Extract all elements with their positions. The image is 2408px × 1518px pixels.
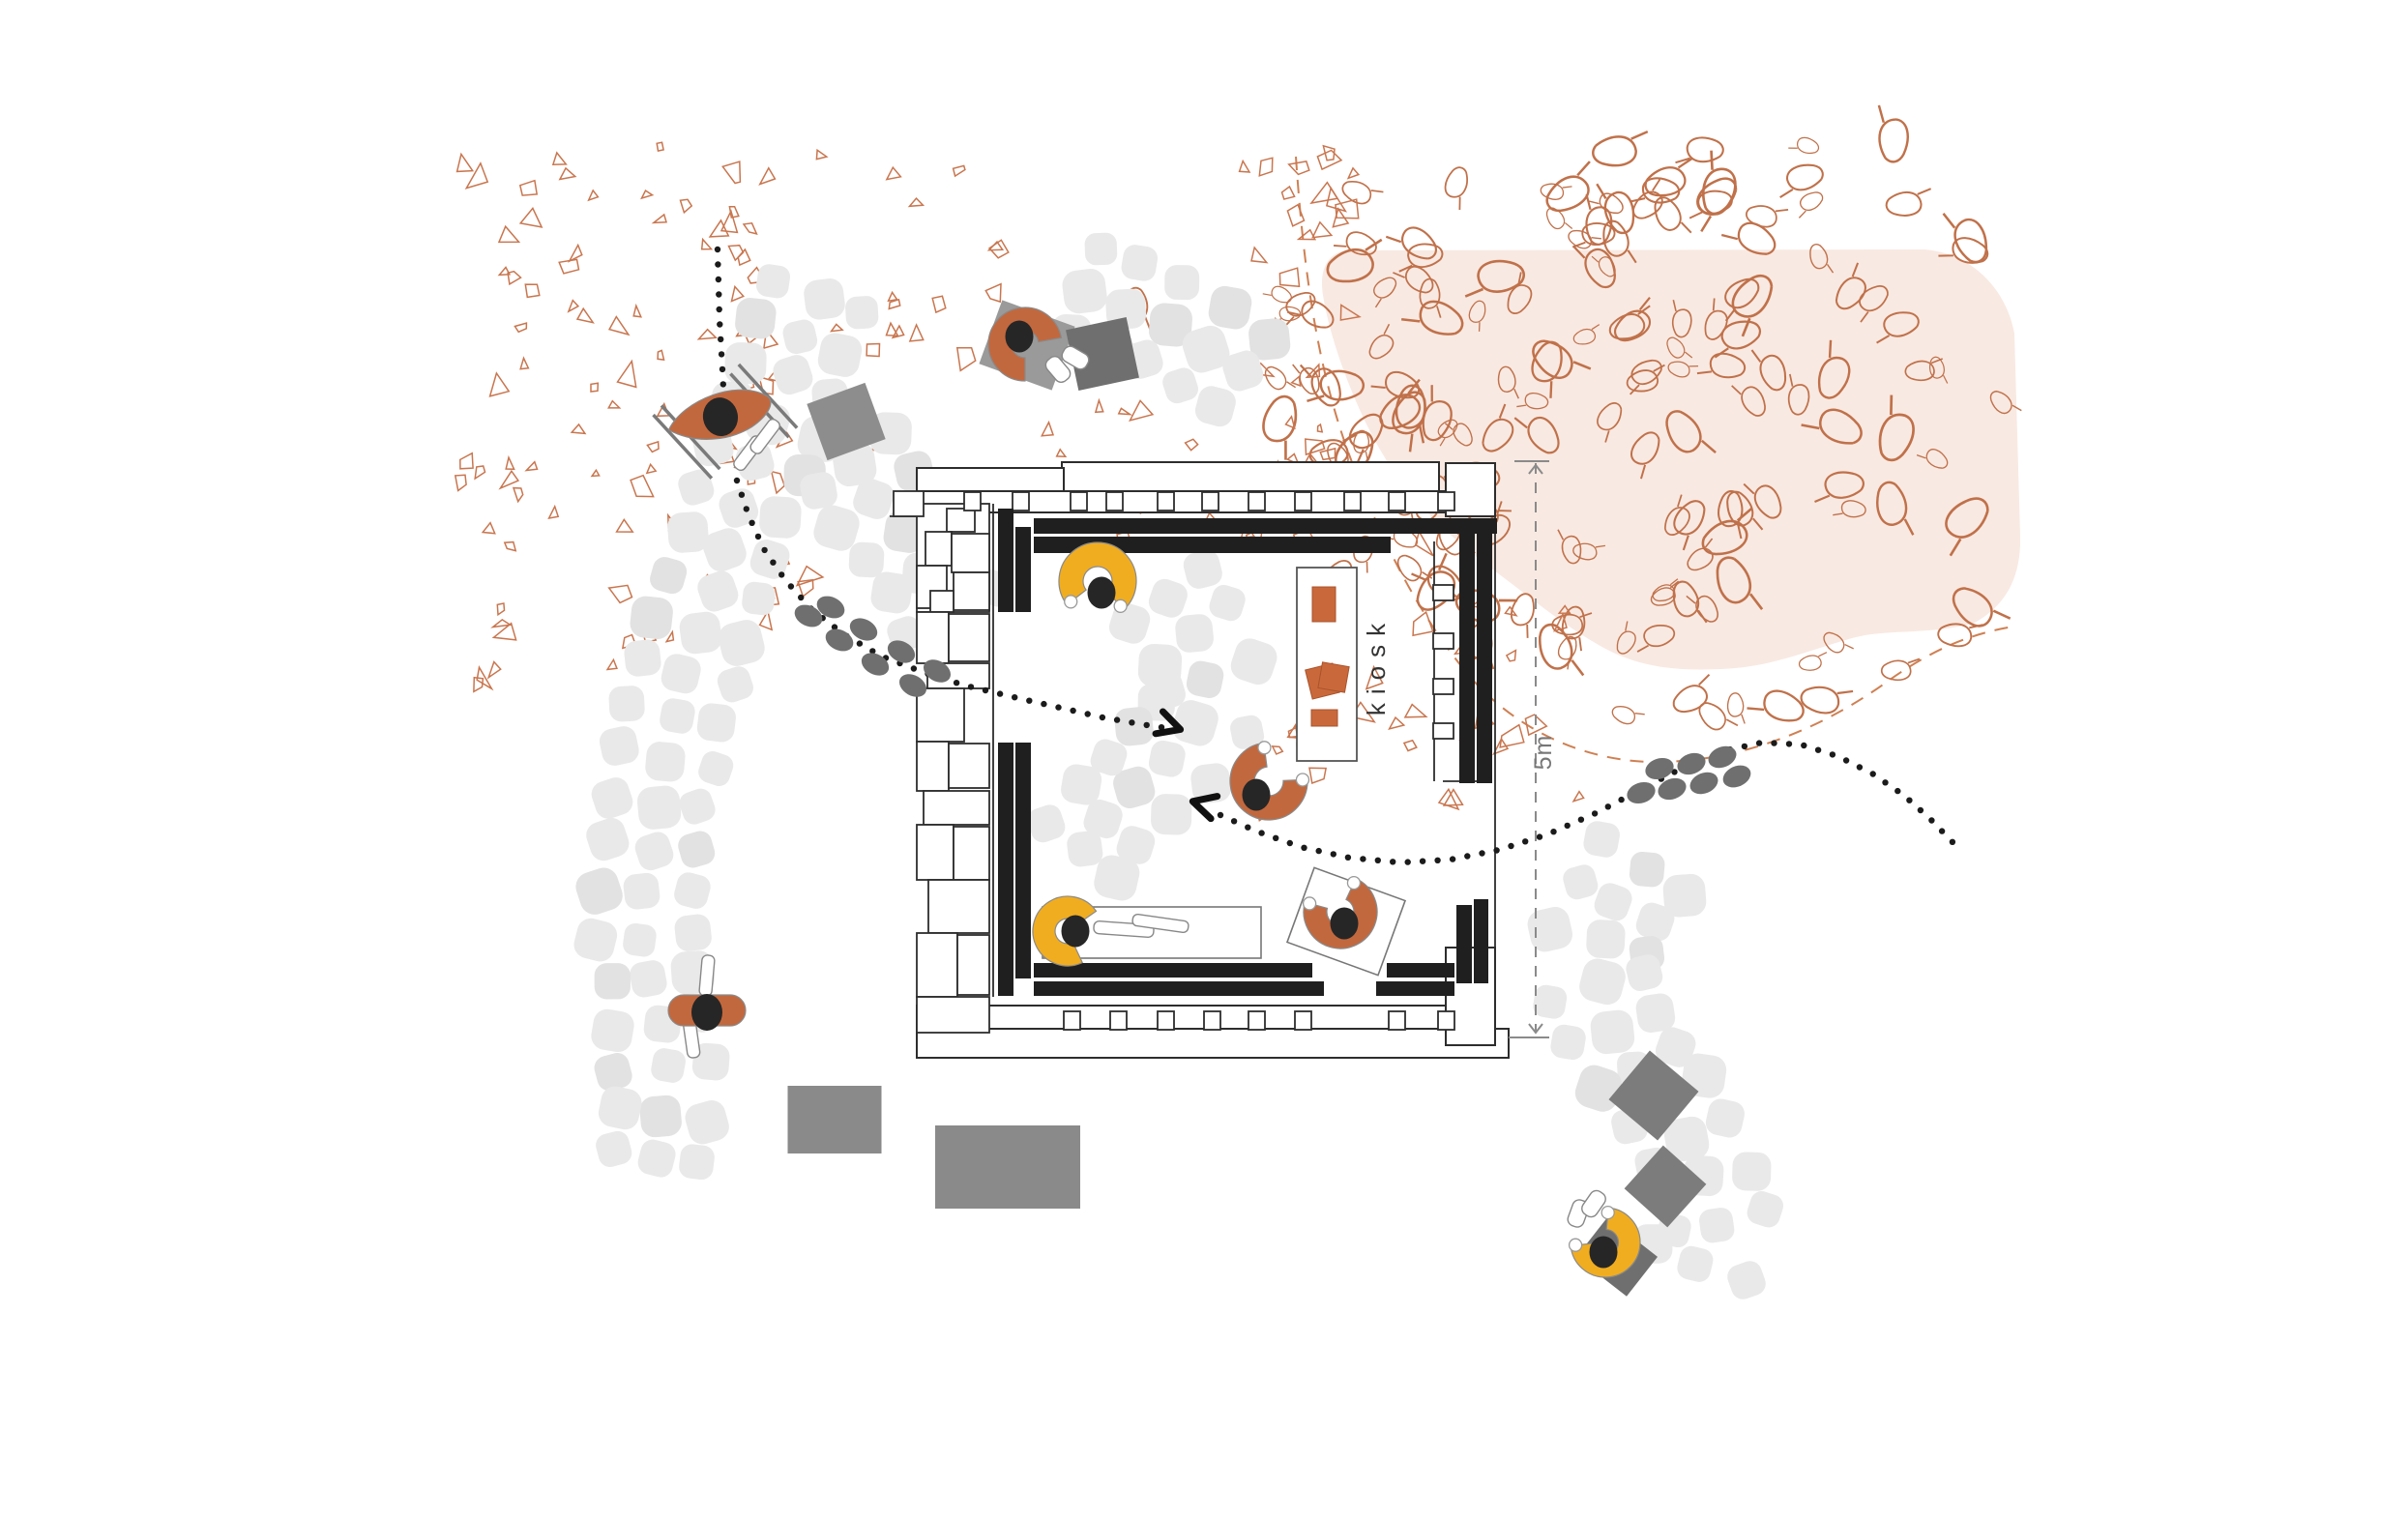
confetti-icon	[738, 249, 750, 265]
cobblestone	[1147, 739, 1188, 779]
leaf-icon	[1590, 113, 1648, 175]
cobblestone	[638, 1095, 683, 1139]
cobblestone	[1207, 582, 1248, 624]
cobblestone	[1145, 575, 1190, 621]
confetti-icon	[474, 678, 484, 692]
confetti-icon	[1318, 424, 1323, 432]
wall-black	[998, 743, 1013, 996]
confetti-icon	[455, 475, 466, 490]
leaf-icon	[1673, 671, 1710, 715]
wall-black	[1034, 518, 1497, 534]
confetti-icon	[609, 585, 632, 602]
confetti-icon	[699, 330, 717, 339]
trail-dot	[1450, 856, 1455, 861]
trail-dot	[1390, 859, 1395, 864]
cobblestone	[1185, 658, 1226, 700]
cobblestone	[1561, 862, 1600, 902]
trail-dot	[717, 321, 722, 327]
cobblestone	[1525, 904, 1575, 954]
confetti-icon	[760, 168, 776, 185]
cobblestone	[622, 872, 661, 911]
cobblestone	[1106, 599, 1154, 647]
confetti-icon	[1390, 717, 1404, 729]
cobblestone	[644, 741, 687, 783]
confetti-icon	[658, 350, 663, 360]
cobblestone	[694, 568, 742, 615]
cobblestone	[1732, 1152, 1772, 1191]
confetti-icon	[1240, 161, 1249, 173]
confetti-icon	[1287, 205, 1304, 226]
trail-dot	[798, 595, 804, 600]
service-room	[917, 742, 949, 791]
confetti-icon	[957, 348, 976, 371]
leaf-icon	[1689, 184, 1735, 232]
confetti-icon	[721, 211, 737, 232]
cobblestone	[675, 467, 717, 509]
confetti-icon	[657, 142, 663, 151]
confetti-icon	[797, 567, 823, 586]
confetti-icon	[560, 168, 575, 180]
trail-dot	[1493, 847, 1499, 853]
service-room	[928, 880, 989, 933]
trail-dot	[788, 583, 794, 589]
cobblestone	[1586, 920, 1627, 960]
column	[1248, 1011, 1265, 1030]
cobblestone	[1745, 1188, 1786, 1230]
kiosk-counter-item	[1312, 587, 1336, 622]
trail-dot	[715, 247, 720, 252]
trail-dot	[770, 560, 776, 566]
trail-dot	[1100, 715, 1105, 720]
cobblestone	[635, 1137, 678, 1180]
bench-rect-bottom-a	[788, 1086, 882, 1153]
trail-dot	[1114, 716, 1120, 722]
trail-dot	[720, 381, 726, 387]
trail-dot	[749, 520, 754, 526]
column	[1064, 1011, 1080, 1030]
cobblestone	[1174, 613, 1215, 654]
leaf-icon	[1799, 191, 1823, 220]
cobblestone	[1629, 851, 1665, 888]
cobblestone	[608, 686, 645, 722]
confetti-icon	[1057, 450, 1066, 456]
leaf-icon	[1546, 160, 1590, 213]
confetti-icon	[744, 223, 756, 234]
footprint-icon	[1624, 778, 1658, 806]
confetti-icon	[570, 246, 582, 262]
wall-black	[1387, 963, 1454, 978]
confetti-icon	[569, 301, 578, 312]
confetti-icon	[493, 620, 511, 628]
cobblestone	[571, 916, 620, 965]
trail-dot	[1870, 771, 1876, 776]
confetti-icon	[1273, 746, 1283, 754]
confetti-icon	[772, 472, 785, 493]
cobblestone	[1084, 232, 1117, 265]
trail-dot	[1550, 829, 1556, 834]
trail-dot	[1405, 859, 1411, 864]
trail-dot	[1830, 751, 1835, 757]
trail-dot	[719, 351, 724, 357]
drawing-layers	[455, 105, 2022, 1302]
dimension-label: 5m	[1530, 735, 1557, 771]
leaf-icon	[1438, 164, 1483, 210]
service-room	[930, 591, 954, 612]
column	[1248, 492, 1265, 511]
trail-dot	[1618, 797, 1624, 803]
confetti-icon	[520, 181, 537, 195]
leaf-icon	[1252, 392, 1319, 459]
service-room	[925, 532, 952, 566]
confetti-icon	[732, 287, 744, 302]
confetti-icon	[832, 324, 843, 331]
confetti-icon	[1251, 248, 1267, 263]
wall-black	[1015, 743, 1031, 978]
trail-dot	[1345, 855, 1351, 861]
trail-dot	[968, 684, 974, 689]
trail-dot	[1906, 798, 1912, 803]
cobblestone	[589, 1007, 636, 1055]
column	[1110, 1011, 1127, 1030]
leaf-icon	[1747, 682, 1806, 740]
service-room	[917, 997, 989, 1033]
confetti-icon	[592, 470, 600, 476]
confetti-icon	[577, 308, 593, 322]
confetti-icon	[729, 246, 744, 260]
cobblestone	[758, 496, 802, 540]
trail-dot	[1434, 858, 1440, 863]
cobblestone	[1206, 284, 1253, 332]
cobblestone	[572, 864, 626, 919]
service-room	[954, 572, 989, 610]
trail-dot	[744, 506, 749, 511]
person-standing-courtyard	[1059, 542, 1136, 612]
confetti-icon	[816, 150, 826, 159]
confetti-icon	[989, 240, 1009, 257]
column	[1158, 1011, 1174, 1030]
service-room	[947, 509, 975, 532]
cobblestone	[848, 541, 885, 578]
cobblestone	[595, 963, 631, 999]
column	[1295, 492, 1311, 511]
trail-dot	[1026, 698, 1032, 704]
wall-black	[998, 509, 1013, 612]
column	[1389, 1011, 1405, 1030]
trail-dot	[1273, 835, 1278, 841]
confetti-icon	[1404, 741, 1417, 751]
trail-dot	[1287, 840, 1293, 846]
trail-dot	[719, 366, 725, 372]
leaf-icon	[1856, 105, 1919, 166]
confetti-icon	[887, 323, 898, 336]
confetti-icon	[499, 268, 510, 276]
confetti-icon	[985, 284, 1001, 302]
confetti-icon	[608, 401, 619, 408]
trail-dot	[1316, 848, 1322, 854]
confetti-icon	[647, 464, 656, 473]
cobblestone	[1227, 634, 1281, 688]
column	[1158, 492, 1174, 511]
cobblestone	[594, 1128, 634, 1169]
cobblestone	[658, 696, 696, 735]
confetti-icon	[553, 153, 566, 164]
confetti-icon	[1348, 168, 1359, 178]
site-plan-canvas: kiosk 5m	[0, 0, 2408, 1518]
cobblestone	[1589, 1008, 1635, 1055]
confetti-icon	[526, 462, 537, 471]
trail-dot	[1231, 818, 1237, 824]
trail-dot	[1055, 704, 1061, 710]
confetti-icon	[1259, 158, 1273, 176]
leaf-icon	[1798, 667, 1853, 723]
cobblestone	[647, 554, 690, 597]
column	[1433, 585, 1454, 600]
trail-dot	[1041, 701, 1046, 707]
trail-dot	[715, 261, 720, 267]
trail-dot	[1786, 741, 1792, 746]
service-room	[917, 825, 954, 880]
column	[1438, 1011, 1454, 1030]
leaf-icon	[1884, 173, 1931, 223]
confetti-icon	[729, 207, 738, 218]
cobblestone	[1151, 794, 1192, 835]
trail-dot	[1218, 812, 1223, 818]
trail-dot	[1928, 817, 1934, 823]
confetti-icon	[1500, 725, 1524, 747]
cobblestone	[649, 1046, 687, 1084]
column	[1433, 633, 1454, 649]
confetti-icon	[1292, 377, 1301, 386]
cobblestone	[675, 829, 718, 871]
confetti-icon	[1506, 607, 1516, 616]
wall-black	[1474, 899, 1488, 983]
cobblestone	[583, 814, 633, 864]
service-room	[917, 612, 949, 663]
trail-dot	[717, 307, 722, 312]
confetti-icon	[572, 424, 585, 433]
confetti-icon	[910, 198, 924, 206]
column	[1106, 492, 1123, 511]
cobblestone	[623, 638, 662, 678]
confetti-icon	[617, 519, 633, 532]
leaf-icon	[1780, 159, 1826, 209]
cobblestone	[636, 784, 683, 831]
cobblestone	[695, 748, 736, 789]
cobblestone	[1576, 955, 1629, 1007]
cobblestone	[671, 870, 713, 912]
confetti-icon	[609, 317, 629, 335]
confetti-icon	[631, 476, 654, 497]
cobblestone	[1581, 819, 1622, 860]
site-plan-svg: kiosk 5m	[0, 0, 2408, 1518]
confetti-icon	[488, 662, 501, 678]
wall-black	[1477, 519, 1492, 783]
tree-canopy-blob	[1322, 249, 2020, 669]
cobblestone	[1724, 1258, 1769, 1302]
confetti-icon	[1282, 187, 1295, 199]
service-room	[949, 744, 989, 788]
trail-dot	[1508, 843, 1513, 849]
confetti-icon	[475, 466, 485, 479]
trail-dot	[857, 640, 863, 646]
trail-dot	[1771, 740, 1777, 745]
cobblestone	[1549, 1023, 1588, 1062]
trail-dot	[755, 534, 761, 540]
cobblestone	[1531, 983, 1568, 1020]
confetti-icon	[1312, 222, 1331, 238]
cobblestone	[1181, 547, 1225, 592]
confetti-icon	[681, 199, 692, 213]
confetti-icon	[520, 358, 528, 368]
cobblestone	[695, 702, 737, 744]
confetti-icon	[505, 542, 515, 551]
cobblestone	[724, 342, 767, 385]
confetti-icon	[654, 215, 666, 223]
cobblestone	[678, 610, 723, 656]
service-room	[954, 827, 989, 880]
column	[1344, 492, 1361, 511]
trail-dot	[734, 478, 740, 483]
confetti-icon	[490, 373, 510, 396]
building-frame	[1062, 462, 1439, 493]
cobblestone	[803, 277, 847, 321]
column	[1071, 492, 1087, 511]
confetti-icon	[1405, 705, 1426, 717]
confetti-icon	[1309, 768, 1326, 783]
cobblestone	[770, 352, 816, 398]
kiosk-building-layer	[890, 462, 1509, 1058]
kiosk-counter-item	[1318, 662, 1349, 692]
wall-black	[1459, 519, 1475, 783]
confetti-icon	[514, 488, 523, 502]
column	[964, 492, 981, 511]
trail-dot	[1479, 850, 1484, 856]
trail-dot	[1331, 851, 1336, 857]
wall-black	[1034, 981, 1324, 996]
kiosk-counter-item	[1311, 710, 1337, 726]
trail-dot	[716, 277, 721, 282]
trail-dot	[1592, 810, 1598, 816]
column	[1438, 492, 1454, 511]
confetti-icon	[457, 154, 473, 171]
confetti-icon	[887, 167, 901, 179]
confetti-icon	[1042, 423, 1053, 436]
confetti-icon	[497, 603, 504, 615]
service-room	[957, 935, 989, 995]
trail-dot	[1085, 711, 1091, 716]
cobblestone	[1698, 1207, 1736, 1244]
trail-dot	[1882, 779, 1888, 785]
footprint-icon	[1642, 754, 1676, 782]
service-room	[894, 491, 924, 516]
confetti-icon	[1507, 651, 1516, 661]
column	[1013, 492, 1029, 511]
cobblestone	[1675, 1243, 1716, 1284]
leaf-icon	[1879, 645, 1920, 687]
trail-dot	[1360, 856, 1366, 861]
trail-dot	[1012, 694, 1017, 700]
trail-dot	[1894, 788, 1900, 794]
confetti-icon	[1573, 792, 1584, 802]
service-room	[949, 614, 989, 661]
trail-dot	[1857, 764, 1863, 770]
confetti-icon	[549, 507, 559, 518]
cobblestone	[1066, 830, 1104, 868]
confetti-icon	[932, 296, 946, 312]
trail-dot	[1375, 858, 1381, 863]
cobblestone	[588, 774, 636, 823]
confetti-icon	[702, 240, 712, 249]
cobblestone	[741, 581, 777, 617]
wall-black	[1456, 905, 1472, 983]
cobblestone	[1120, 243, 1160, 282]
trail-dot	[997, 690, 1003, 696]
confetti-icon	[647, 442, 659, 452]
trail-dot	[1918, 807, 1923, 813]
cobblestone	[754, 263, 791, 300]
trail-dot	[1537, 833, 1542, 839]
cobblestone	[715, 663, 756, 705]
confetti-icon	[506, 457, 514, 469]
confetti-icon	[1416, 532, 1433, 556]
confetti-icon	[589, 190, 599, 200]
cobblestone	[629, 595, 674, 640]
trail-dot	[739, 492, 745, 498]
trail-dot	[778, 571, 784, 577]
trail-dot	[1815, 747, 1821, 753]
trail-dot	[1605, 803, 1611, 809]
column	[1295, 1011, 1311, 1030]
confetti-icon	[607, 659, 617, 669]
trail-dot	[1420, 859, 1425, 864]
kiosk-label: kiosk	[1362, 615, 1391, 715]
trail-dot	[1742, 744, 1747, 749]
confetti-icon	[1186, 439, 1198, 450]
trail-dot	[954, 680, 959, 686]
cobblestone	[844, 295, 878, 329]
trail-dot	[1843, 757, 1849, 763]
cobblestone	[631, 829, 676, 873]
trail-dot	[718, 336, 723, 342]
confetti-icon	[954, 165, 965, 176]
confetti-icon	[514, 323, 526, 332]
confetti-icon	[1279, 268, 1299, 286]
confetti-icon	[618, 362, 636, 388]
leaf-icon	[1788, 132, 1820, 164]
confetti-icon	[1289, 161, 1309, 175]
cobblestone	[659, 652, 703, 696]
confetti-icon	[483, 523, 495, 534]
cobblestone	[815, 331, 864, 379]
cobblestone	[734, 297, 778, 340]
service-room	[952, 534, 989, 572]
confetti-icon	[1413, 612, 1433, 635]
column	[1433, 723, 1454, 739]
column	[1202, 492, 1219, 511]
cobblestone	[628, 958, 668, 999]
trail-dot	[1245, 825, 1250, 831]
confetti-icon	[889, 292, 897, 301]
leaf-icon	[1553, 634, 1586, 669]
confetti-icon	[591, 383, 598, 392]
trail-dot	[1522, 838, 1528, 844]
leaf-icon	[1695, 177, 1741, 231]
trail-dot	[1464, 853, 1470, 859]
trail-dot	[1070, 708, 1075, 714]
cobblestone	[1164, 265, 1199, 300]
service-room	[924, 791, 989, 825]
column	[1389, 492, 1405, 511]
